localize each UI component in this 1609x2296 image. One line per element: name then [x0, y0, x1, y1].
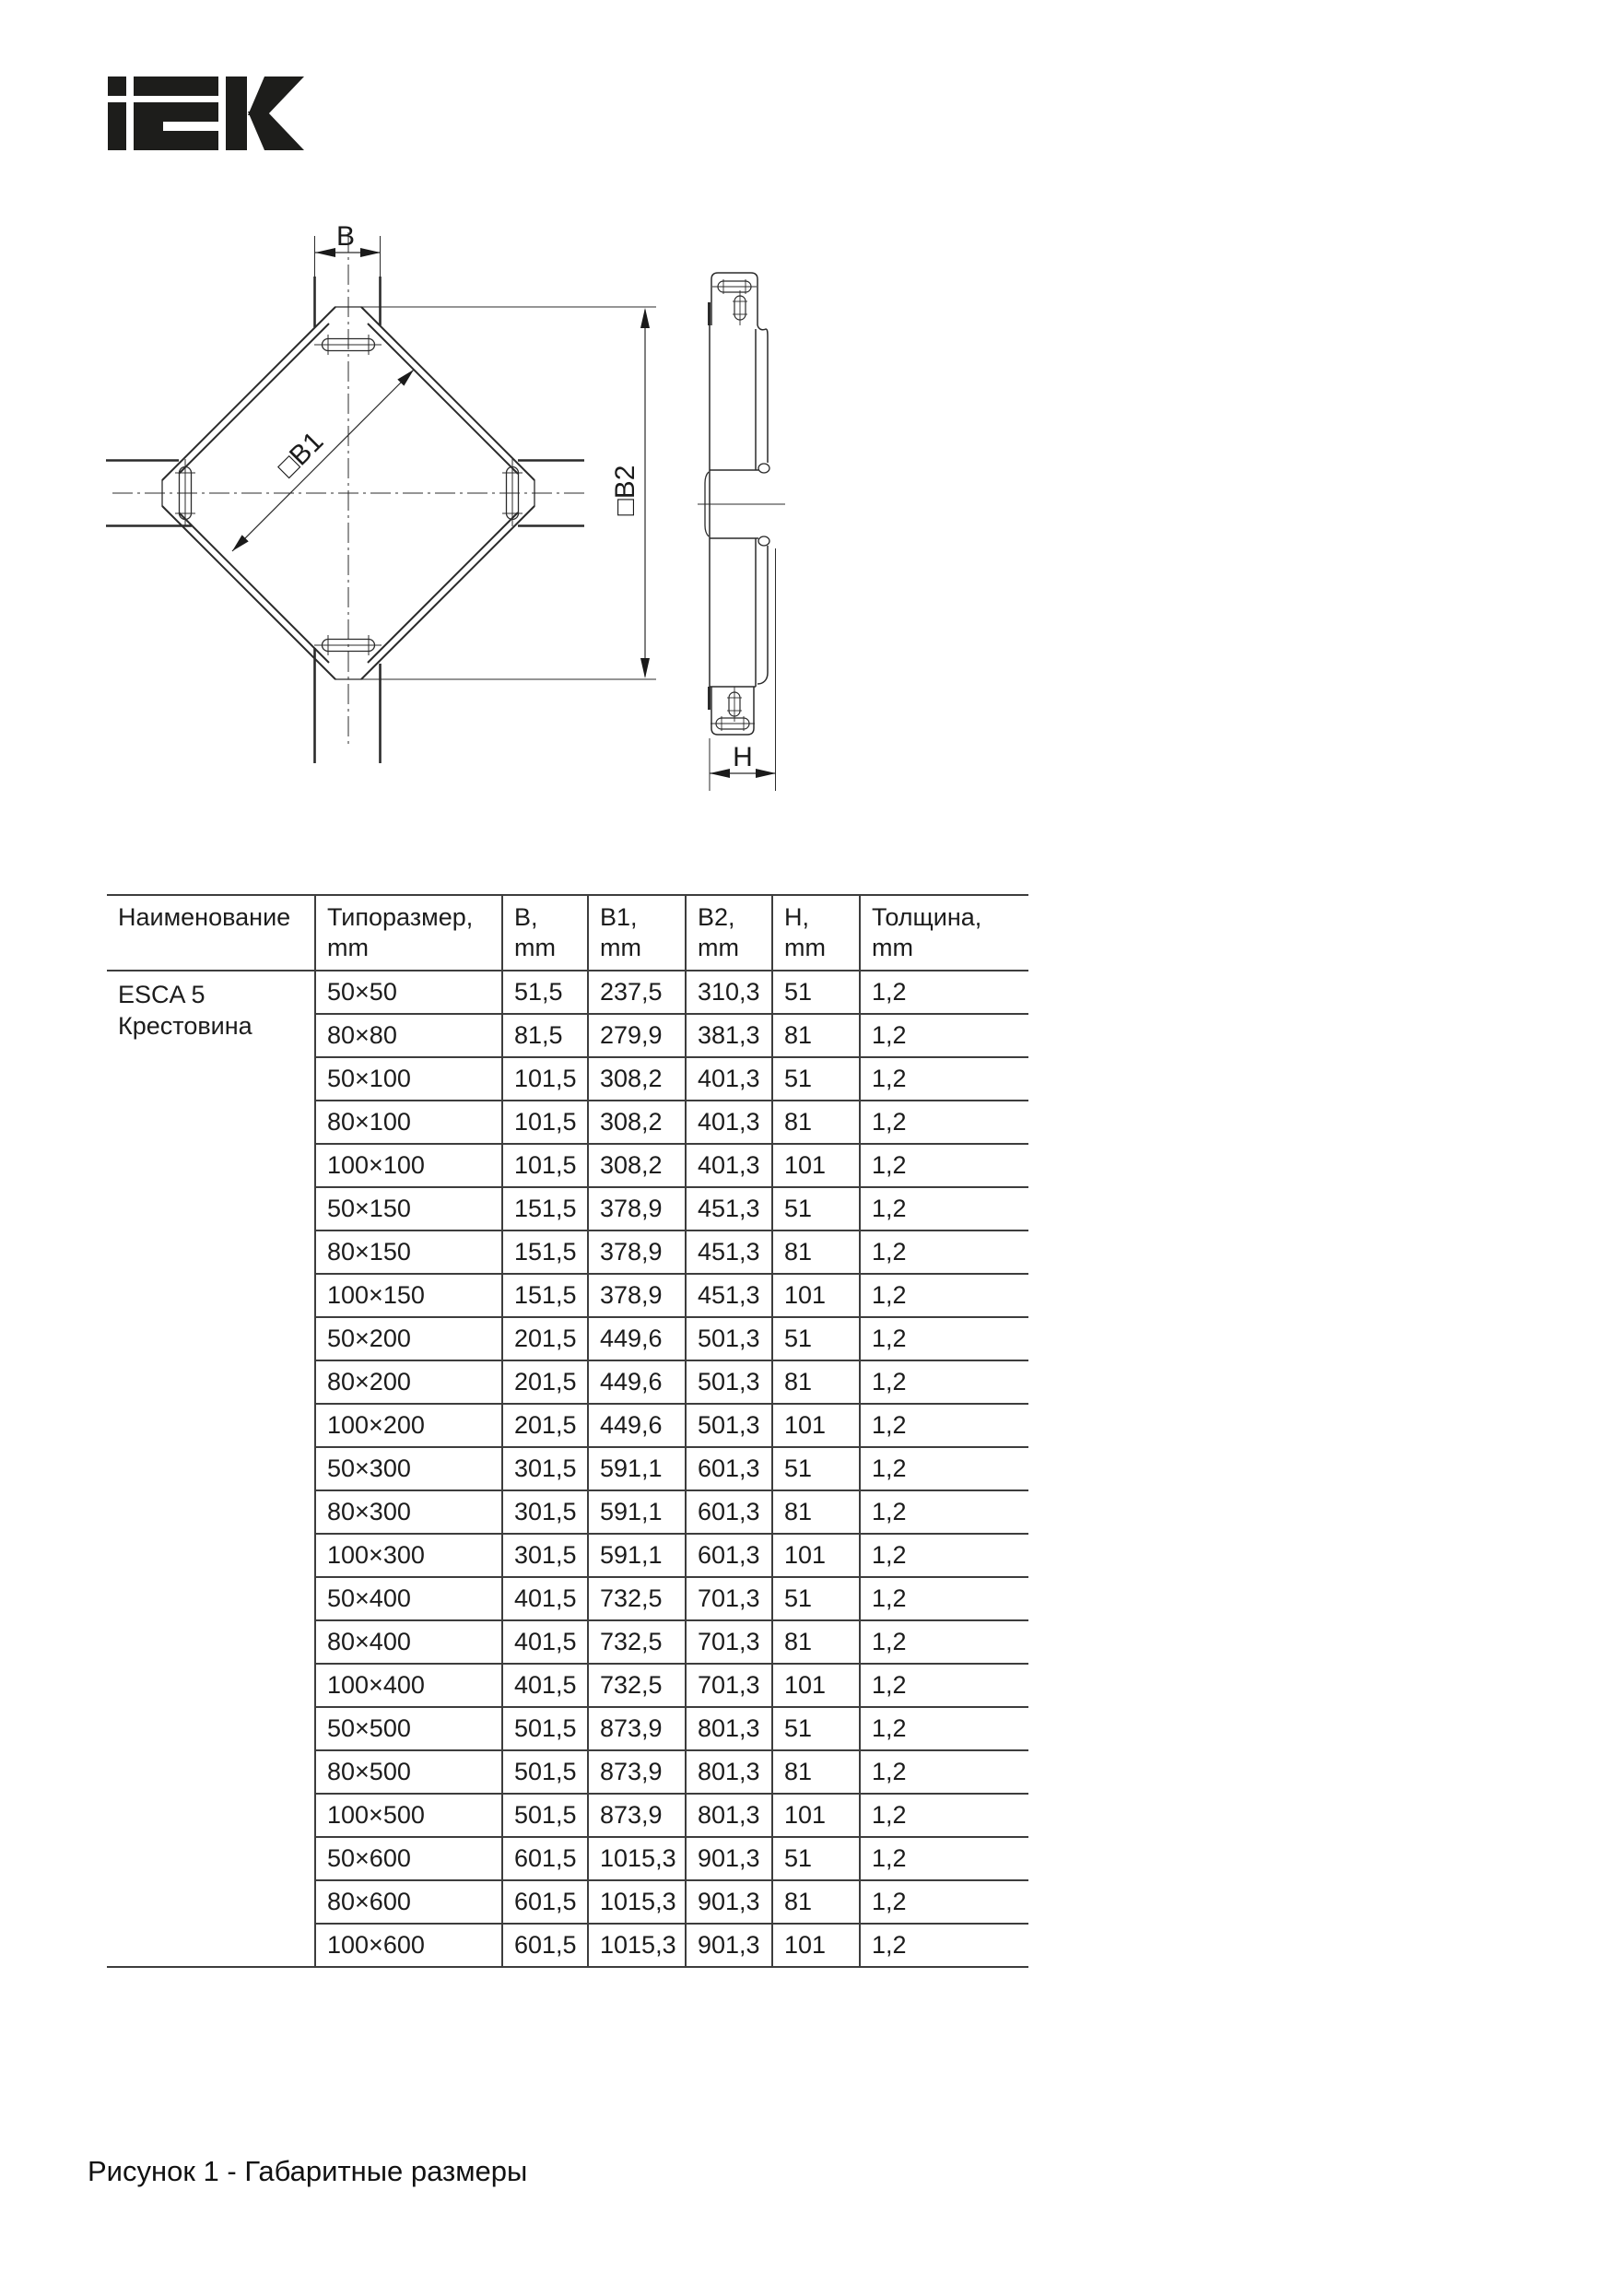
cell-h: 81 — [772, 1880, 860, 1924]
cell-t: 1,2 — [860, 1404, 1028, 1447]
cell-size: 100×300 — [315, 1534, 502, 1577]
cell-b1: 449,6 — [588, 1404, 686, 1447]
arrow-right — [756, 769, 776, 778]
cell-h: 51 — [772, 1577, 860, 1620]
cell-b1: 449,6 — [588, 1317, 686, 1360]
cell-size: 100×400 — [315, 1664, 502, 1707]
cell-t: 1,2 — [860, 1750, 1028, 1794]
col-header-b1: B1,mm — [588, 895, 686, 971]
cell-t: 1,2 — [860, 1317, 1028, 1360]
cell-b1: 378,9 — [588, 1230, 686, 1274]
cell-b: 301,5 — [502, 1490, 588, 1534]
cell-t: 1,2 — [860, 1101, 1028, 1144]
cell-t: 1,2 — [860, 1794, 1028, 1837]
cell-b1: 308,2 — [588, 1101, 686, 1144]
col-header-h: H,mm — [772, 895, 860, 971]
cell-h: 101 — [772, 1404, 860, 1447]
side-view: H — [698, 273, 785, 791]
cell-size: 100×100 — [315, 1144, 502, 1187]
cell-b: 401,5 — [502, 1664, 588, 1707]
col-header-b2: B2,mm — [686, 895, 772, 971]
cell-b1: 1015,3 — [588, 1880, 686, 1924]
cell-size: 50×200 — [315, 1317, 502, 1360]
cell-h: 101 — [772, 1274, 860, 1317]
cell-b1: 873,9 — [588, 1750, 686, 1794]
cell-b2: 801,3 — [686, 1707, 772, 1750]
cell-b: 301,5 — [502, 1534, 588, 1577]
figure-caption: Рисунок 1 - Габаритные размеры — [88, 2155, 527, 2188]
cell-h: 81 — [772, 1230, 860, 1274]
cell-h: 51 — [772, 1317, 860, 1360]
cell-b1: 449,6 — [588, 1360, 686, 1404]
cell-b1: 732,5 — [588, 1620, 686, 1664]
technical-drawing: B □B2 □B1 — [83, 198, 857, 816]
cell-h: 101 — [772, 1794, 860, 1837]
cell-b1: 732,5 — [588, 1577, 686, 1620]
cell-size: 80×500 — [315, 1750, 502, 1794]
cell-h: 81 — [772, 1101, 860, 1144]
cell-size: 100×500 — [315, 1794, 502, 1837]
cell-b2: 501,3 — [686, 1404, 772, 1447]
cell-b: 151,5 — [502, 1187, 588, 1230]
cell-size: 80×200 — [315, 1360, 502, 1404]
logo-k-stem — [226, 77, 247, 150]
cell-b2: 501,3 — [686, 1360, 772, 1404]
cell-b1: 308,2 — [588, 1144, 686, 1187]
cell-b2: 701,3 — [686, 1620, 772, 1664]
table-body: ESCA 5Крестовина50×5051,5237,5310,3511,2… — [107, 971, 1028, 1967]
cell-b1: 1015,3 — [588, 1924, 686, 1967]
flange-bottom-curve — [758, 546, 768, 684]
cell-b1: 308,2 — [588, 1057, 686, 1101]
cell-b1: 873,9 — [588, 1794, 686, 1837]
cell-t: 1,2 — [860, 971, 1028, 1014]
cell-t: 1,2 — [860, 1577, 1028, 1620]
cell-t: 1,2 — [860, 1447, 1028, 1490]
cell-h: 101 — [772, 1144, 860, 1187]
cell-b2: 901,3 — [686, 1880, 772, 1924]
cell-h: 51 — [772, 1447, 860, 1490]
cell-b1: 591,1 — [588, 1447, 686, 1490]
cell-size: 50×150 — [315, 1187, 502, 1230]
datasheet-page: { "logo": { "text": "iEK", "color": "#1d… — [0, 0, 1609, 2296]
cell-size: 50×400 — [315, 1577, 502, 1620]
arrow-right — [360, 248, 381, 257]
iek-logo — [108, 77, 304, 150]
cell-b2: 801,3 — [686, 1794, 772, 1837]
cell-b1: 237,5 — [588, 971, 686, 1014]
cell-b: 401,5 — [502, 1577, 588, 1620]
flange-curl-bottom-body — [758, 536, 769, 546]
cell-size: 80×400 — [315, 1620, 502, 1664]
cell-b: 201,5 — [502, 1317, 588, 1360]
cell-b: 601,5 — [502, 1880, 588, 1924]
logo-e-top — [134, 77, 218, 96]
cell-b2: 381,3 — [686, 1014, 772, 1057]
cell-size: 50×300 — [315, 1447, 502, 1490]
cell-size: 80×100 — [315, 1101, 502, 1144]
cell-size: 100×600 — [315, 1924, 502, 1967]
dimension-h: H — [710, 548, 776, 791]
cell-b: 151,5 — [502, 1230, 588, 1274]
cell-size: 80×600 — [315, 1880, 502, 1924]
cell-b2: 451,3 — [686, 1274, 772, 1317]
cell-size: 100×150 — [315, 1274, 502, 1317]
cell-t: 1,2 — [860, 1534, 1028, 1577]
cell-b: 151,5 — [502, 1274, 588, 1317]
cell-t: 1,2 — [860, 1187, 1028, 1230]
cell-b: 101,5 — [502, 1144, 588, 1187]
cell-h: 51 — [772, 1707, 860, 1750]
logo-i-dot — [108, 77, 126, 96]
dimension-b: B — [315, 221, 382, 277]
cell-h: 81 — [772, 1490, 860, 1534]
dimensions-table-wrap: Наименование Типоразмер,mm B,mm B1,mm B2… — [107, 894, 1028, 1968]
cell-b: 601,5 — [502, 1837, 588, 1880]
cell-h: 51 — [772, 1187, 860, 1230]
cell-h: 101 — [772, 1534, 860, 1577]
cell-size: 50×600 — [315, 1837, 502, 1880]
cell-b1: 873,9 — [588, 1707, 686, 1750]
cell-b1: 279,9 — [588, 1014, 686, 1057]
cell-b1: 378,9 — [588, 1274, 686, 1317]
cell-b: 201,5 — [502, 1360, 588, 1404]
b-dimension-label: B — [336, 221, 355, 252]
cell-b2: 310,3 — [686, 971, 772, 1014]
top-body — [710, 325, 769, 473]
flange-curl-top-body — [758, 464, 769, 473]
plan-view: B □B2 □B1 — [106, 221, 656, 763]
logo-k-upper-arm — [248, 77, 304, 115]
cell-t: 1,2 — [860, 1620, 1028, 1664]
cell-t: 1,2 — [860, 1707, 1028, 1750]
cell-b2: 601,3 — [686, 1447, 772, 1490]
arrow-left — [710, 769, 730, 778]
product-name-cell: ESCA 5Крестовина — [107, 971, 315, 1967]
bottom-tab-slots — [711, 687, 755, 731]
cell-h: 51 — [772, 971, 860, 1014]
cell-h: 81 — [772, 1014, 860, 1057]
table-header-row: Наименование Типоразмер,mm B,mm B1,mm B2… — [107, 895, 1028, 971]
cell-b1: 591,1 — [588, 1490, 686, 1534]
cell-b2: 401,3 — [686, 1144, 772, 1187]
cell-t: 1,2 — [860, 1924, 1028, 1967]
cell-b2: 401,3 — [686, 1101, 772, 1144]
cell-t: 1,2 — [860, 1490, 1028, 1534]
cell-b: 101,5 — [502, 1057, 588, 1101]
b2-dimension-label: □B2 — [610, 465, 640, 516]
col-header-thickness: Толщина,mm — [860, 895, 1028, 971]
cell-t: 1,2 — [860, 1014, 1028, 1057]
cell-size: 50×100 — [315, 1057, 502, 1101]
cell-b: 501,5 — [502, 1707, 588, 1750]
cell-b2: 451,3 — [686, 1230, 772, 1274]
cell-t: 1,2 — [860, 1057, 1028, 1101]
cell-b2: 601,3 — [686, 1534, 772, 1577]
cell-b: 301,5 — [502, 1447, 588, 1490]
logo-e-body — [134, 102, 218, 150]
cell-b: 601,5 — [502, 1924, 588, 1967]
cell-h: 101 — [772, 1664, 860, 1707]
cell-b1: 1015,3 — [588, 1837, 686, 1880]
cell-size: 80×80 — [315, 1014, 502, 1057]
cell-b: 101,5 — [502, 1101, 588, 1144]
cell-size: 50×50 — [315, 971, 502, 1014]
middle-joint — [698, 470, 785, 538]
col-header-b: B,mm — [502, 895, 588, 971]
cell-t: 1,2 — [860, 1880, 1028, 1924]
cell-b: 51,5 — [502, 971, 588, 1014]
cell-b1: 732,5 — [588, 1664, 686, 1707]
cell-b: 501,5 — [502, 1750, 588, 1794]
arrow-down — [640, 658, 650, 678]
cell-b: 201,5 — [502, 1404, 588, 1447]
top-tab-slots — [712, 279, 757, 325]
cell-size: 50×500 — [315, 1707, 502, 1750]
cell-h: 101 — [772, 1924, 860, 1967]
cell-b2: 451,3 — [686, 1187, 772, 1230]
cell-b2: 901,3 — [686, 1924, 772, 1967]
cell-h: 81 — [772, 1620, 860, 1664]
bottom-body — [710, 536, 769, 687]
arrow-left — [315, 248, 335, 257]
cell-b2: 401,3 — [686, 1057, 772, 1101]
dimensions-table: Наименование Типоразмер,mm B,mm B1,mm B2… — [107, 894, 1028, 1968]
dimension-b1: □B1 — [232, 370, 414, 551]
cell-t: 1,2 — [860, 1144, 1028, 1187]
cell-b: 501,5 — [502, 1794, 588, 1837]
cell-b2: 501,3 — [686, 1317, 772, 1360]
cell-b2: 901,3 — [686, 1837, 772, 1880]
flange-top-curve — [758, 325, 768, 463]
cell-b: 401,5 — [502, 1620, 588, 1664]
cell-b: 81,5 — [502, 1014, 588, 1057]
cell-b1: 591,1 — [588, 1534, 686, 1577]
cell-h: 51 — [772, 1837, 860, 1880]
cell-h: 81 — [772, 1360, 860, 1404]
cell-b2: 701,3 — [686, 1577, 772, 1620]
cell-t: 1,2 — [860, 1230, 1028, 1274]
cell-b2: 701,3 — [686, 1664, 772, 1707]
cell-t: 1,2 — [860, 1837, 1028, 1880]
cell-b2: 801,3 — [686, 1750, 772, 1794]
cell-t: 1,2 — [860, 1664, 1028, 1707]
b1-dimension-label: □B1 — [272, 426, 329, 483]
logo-i-bar — [108, 102, 126, 150]
table-row: ESCA 5Крестовина50×5051,5237,5310,3511,2 — [107, 971, 1028, 1014]
cell-size: 80×300 — [315, 1490, 502, 1534]
logo-k-lower-arm — [248, 112, 304, 150]
h-dimension-label: H — [733, 742, 753, 772]
cell-h: 81 — [772, 1750, 860, 1794]
arrow-up — [640, 308, 650, 328]
col-header-name: Наименование — [107, 895, 315, 971]
cell-t: 1,2 — [860, 1274, 1028, 1317]
cell-b1: 378,9 — [588, 1187, 686, 1230]
cell-t: 1,2 — [860, 1360, 1028, 1404]
cell-b2: 601,3 — [686, 1490, 772, 1534]
cell-h: 51 — [772, 1057, 860, 1101]
cell-size: 100×200 — [315, 1404, 502, 1447]
cell-size: 80×150 — [315, 1230, 502, 1274]
col-header-size: Типоразмер,mm — [315, 895, 502, 971]
